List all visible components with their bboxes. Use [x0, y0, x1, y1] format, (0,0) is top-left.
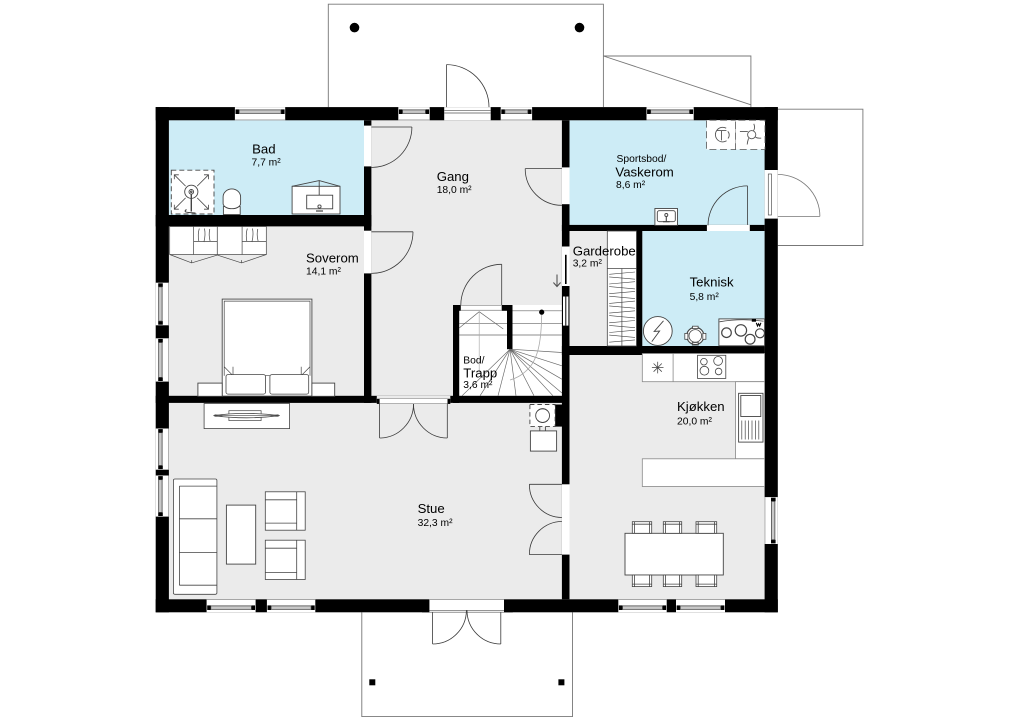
svg-text:5,8 m²: 5,8 m² — [690, 292, 720, 303]
svg-text:14,1 m²: 14,1 m² — [306, 267, 341, 278]
svg-text:Sportsbod/: Sportsbod/ — [617, 154, 667, 165]
svg-text:32,3 m²: 32,3 m² — [418, 518, 453, 529]
svg-text:Kjøkken: Kjøkken — [677, 399, 725, 414]
svg-text:Garderobe: Garderobe — [573, 244, 636, 259]
svg-text:8,6 m²: 8,6 m² — [616, 180, 646, 191]
svg-text:7,7 m²: 7,7 m² — [252, 157, 282, 168]
svg-text:Trapp: Trapp — [463, 365, 497, 380]
svg-text:Bad: Bad — [252, 142, 275, 157]
svg-text:Gang: Gang — [437, 169, 469, 184]
svg-text:20,0 m²: 20,0 m² — [677, 416, 712, 427]
svg-text:Vaskerom: Vaskerom — [615, 165, 673, 180]
svg-text:18,0 m²: 18,0 m² — [437, 185, 472, 196]
svg-text:Soverom: Soverom — [306, 251, 359, 266]
svg-text:Teknisk: Teknisk — [690, 275, 734, 290]
svg-text:3,6 m²: 3,6 m² — [463, 380, 493, 391]
svg-text:3,2 m²: 3,2 m² — [573, 259, 603, 270]
svg-text:Stue: Stue — [418, 501, 445, 516]
